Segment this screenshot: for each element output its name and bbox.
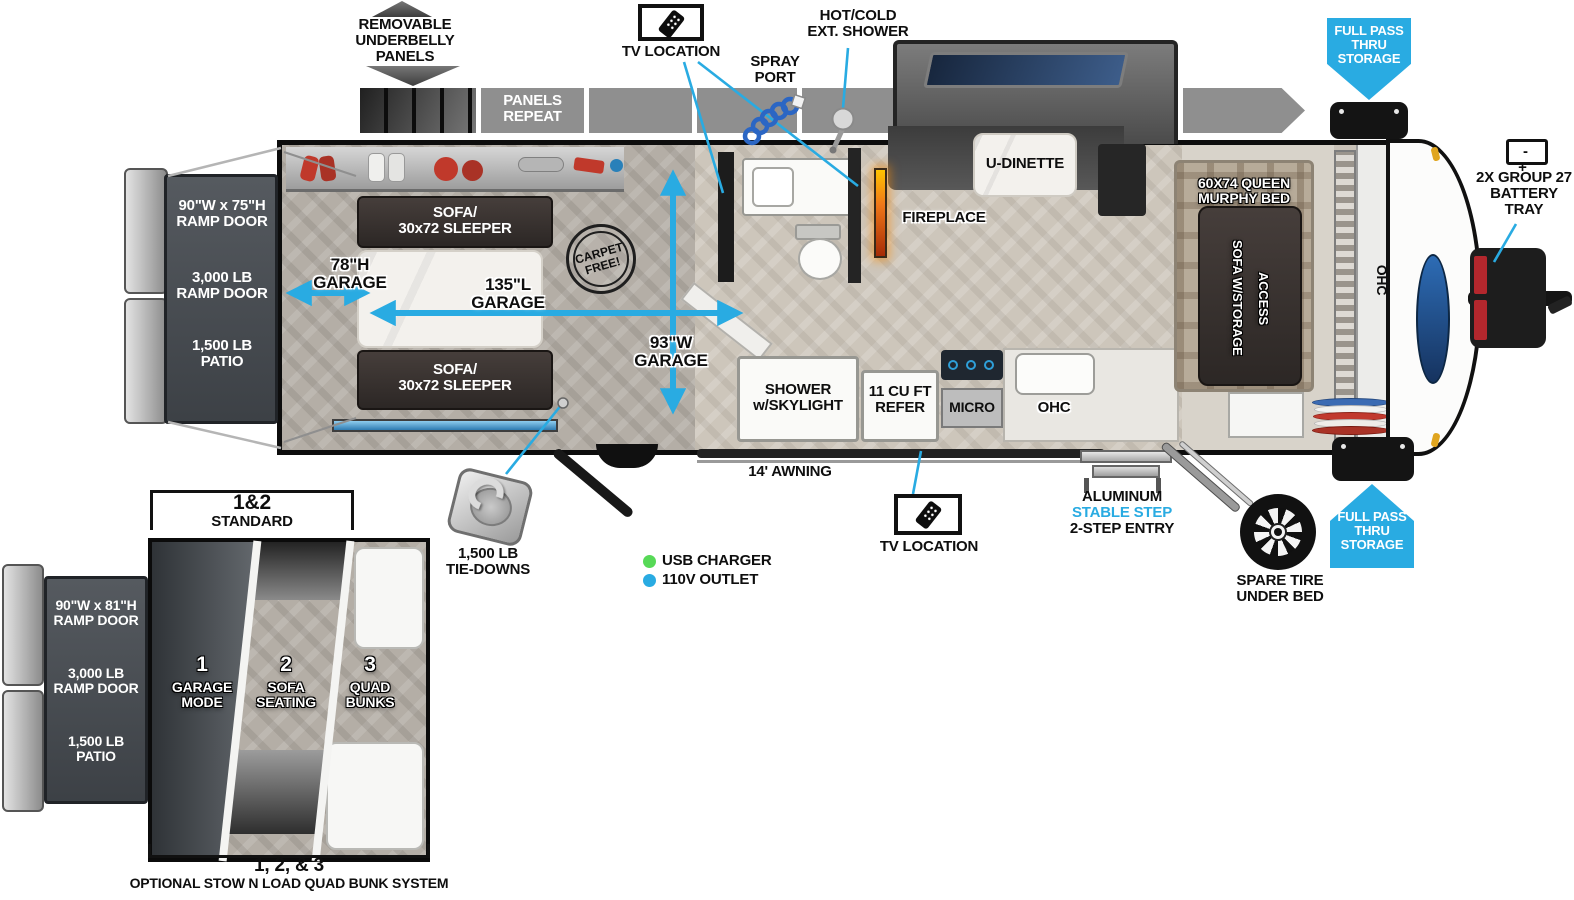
bath-vanity [742, 158, 854, 216]
bath-sink [752, 167, 794, 207]
ohc-front-label: OHC [1373, 250, 1389, 310]
tv-location-top-box [638, 4, 704, 41]
step-tread [1080, 450, 1172, 463]
legend-usb-dot [643, 555, 656, 568]
remote-icon [658, 9, 686, 39]
step-label-1: ALUMINUM [1062, 489, 1182, 505]
panels-repeat-label: PANELS REPEAT [481, 93, 584, 125]
inset-patio-label: 1,500 LB PATIO [50, 734, 142, 764]
burner-icon [948, 360, 958, 370]
inset-bracket-bottom-big: 1, 2, & 3 [148, 856, 430, 877]
gear-item [573, 157, 605, 174]
underbelly-panel [802, 88, 896, 133]
nightstand [1228, 392, 1304, 438]
gear-item [299, 155, 320, 183]
garage-sofa-bottom-label: SOFA/ 30x72 SLEEPER [360, 362, 550, 394]
step-label-2: STABLE STEP [1062, 505, 1182, 521]
full-pass-storage-bottom-label: FULL PASS THRU STORAGE [1330, 510, 1414, 552]
tv-location-top-label: TV LOCATION [606, 44, 736, 60]
tire-hub-dot [1274, 528, 1282, 536]
refer-label: 11 CU FT REFER [862, 384, 938, 416]
tie-down-label: 1,500 LB TIE-DOWNS [434, 546, 542, 578]
gear-item [518, 157, 564, 172]
step-tread [1092, 465, 1160, 478]
inset-bracket-standard-small: STANDARD [150, 514, 354, 530]
fireplace [874, 168, 887, 258]
ohc-kitchen-label: OHC [1022, 400, 1086, 416]
full-pass-storage-top-label: FULL PASS THRU STORAGE [1327, 24, 1411, 66]
brand-logo [1416, 254, 1450, 384]
toilet-bowl [798, 238, 842, 280]
inset-zone3-label: QUAD BUNKS [328, 680, 412, 710]
pass-thru-door-top [1330, 102, 1408, 139]
garage-width-label: 93"W GARAGE [627, 334, 715, 371]
tv-location-bottom-box [894, 494, 962, 535]
garage-wall-tv-panel [718, 152, 734, 282]
garage-sofa-top-label: SOFA/ 30x72 SLEEPER [360, 205, 550, 237]
underbelly-panel-ribbed [360, 88, 476, 133]
micro-label: MICRO [941, 400, 1003, 415]
gear-item [434, 157, 458, 181]
slideout-window [923, 52, 1129, 88]
burner-icon [984, 360, 994, 370]
patio-rail [124, 168, 168, 294]
garage-shelf [286, 147, 624, 192]
bath-wall [848, 148, 861, 283]
battery-cell [1474, 256, 1487, 294]
inset-bunk [326, 742, 424, 850]
garage-length-label: 135"L GARAGE [452, 276, 564, 313]
arrow-up-icon [372, 1, 432, 17]
battery-icon: - + [1506, 139, 1548, 165]
inset-zone1-number: 1 [172, 654, 232, 677]
gear-item [388, 153, 405, 182]
inset-zone2-number: 2 [256, 654, 316, 677]
underbelly-panel [697, 88, 797, 133]
legend-outlet-dot [643, 574, 656, 587]
spare-tire-icon [1240, 494, 1316, 570]
u-dinette-label: U-DINETTE [962, 156, 1088, 172]
garage-window-strip [332, 419, 558, 432]
spray-port-label: SPRAY PORT [733, 54, 817, 86]
underbelly-panel-chevron [1253, 88, 1305, 133]
storage-sofa-label: SOFA W/STORAGE ACCESS [1224, 214, 1280, 382]
ramp-size-label: 90"W x 75"H RAMP DOOR [170, 198, 274, 230]
floorplan-diagram: PANELS REPEAT REMOVABLE UNDERBELLY PANEL… [0, 0, 1574, 900]
ramp-capacity-label: 3,000 LB RAMP DOOR [170, 270, 274, 302]
bedroom-cabinet [1098, 144, 1146, 216]
inset-bracket-standard-big: 1&2 [150, 492, 354, 515]
inset-zone1-label: GARAGE MODE [160, 680, 244, 710]
patio-label: 1,500 LB PATIO [170, 338, 274, 370]
inset-patio-rail [2, 564, 44, 686]
gear-item [368, 153, 385, 182]
cooktop [941, 350, 1003, 380]
awning-label: 14' AWNING [732, 464, 848, 480]
inset-bracket-bottom-small: OPTIONAL STOW N LOAD QUAD BUNK SYSTEM [128, 876, 450, 891]
fireplace-label: FIREPLACE [888, 210, 1000, 226]
shower-label: SHOWER w/SKYLIGHT [739, 382, 857, 414]
step-label-3: 2-STEP ENTRY [1062, 521, 1182, 537]
entry-steps [1076, 444, 1176, 494]
inset-zone3-number: 3 [340, 654, 400, 677]
murphy-bed-label: 60X74 QUEEN MURPHY BED [1178, 176, 1310, 206]
legend-outlet-label: 110V OUTLET [662, 572, 782, 588]
arrow-down-icon [366, 66, 460, 86]
battery-cell [1474, 300, 1487, 340]
underbelly-panel [1183, 88, 1253, 133]
underbelly-label: REMOVABLE UNDERBELLY PANELS [342, 17, 468, 66]
carpet-free-label: CARPET FREE! [570, 240, 633, 281]
battery-pack [1470, 248, 1546, 348]
awning-rail [697, 449, 1105, 458]
garage-height-label: 78"H GARAGE [294, 256, 406, 293]
step-well [596, 444, 658, 468]
spare-tire-label: SPARE TIRE UNDER BED [1230, 573, 1330, 605]
ext-shower-label: HOT/COLD EXT. SHOWER [798, 8, 918, 40]
dish [1312, 426, 1390, 435]
carpet-free-stamp: CARPET FREE! [566, 224, 636, 294]
gear-item [318, 155, 336, 182]
gear-item [610, 159, 623, 172]
remote-icon [915, 500, 943, 530]
tv-location-bottom-label: TV LOCATION [866, 539, 992, 555]
inset-patio-rail [2, 690, 44, 812]
underbelly-panel [589, 88, 692, 133]
gear-item [462, 160, 483, 181]
dish-stack [1312, 398, 1390, 436]
battery-tray-label: 2X GROUP 27 BATTERY TRAY [1474, 170, 1574, 219]
inset-zone2-label: SOFA SEATING [244, 680, 328, 710]
kitchen-sink [1015, 353, 1095, 395]
pass-thru-door-bottom [1332, 437, 1414, 481]
burner-icon [966, 360, 976, 370]
patio-rail [124, 298, 168, 424]
legend-usb-label: USB CHARGER [662, 553, 782, 569]
inset-bunk [354, 547, 424, 649]
inset-ramp-capacity-label: 3,000 LB RAMP DOOR [50, 666, 142, 696]
inset-ramp-size-label: 90"W x 81"H RAMP DOOR [50, 598, 142, 628]
tie-down-icon [444, 468, 540, 546]
